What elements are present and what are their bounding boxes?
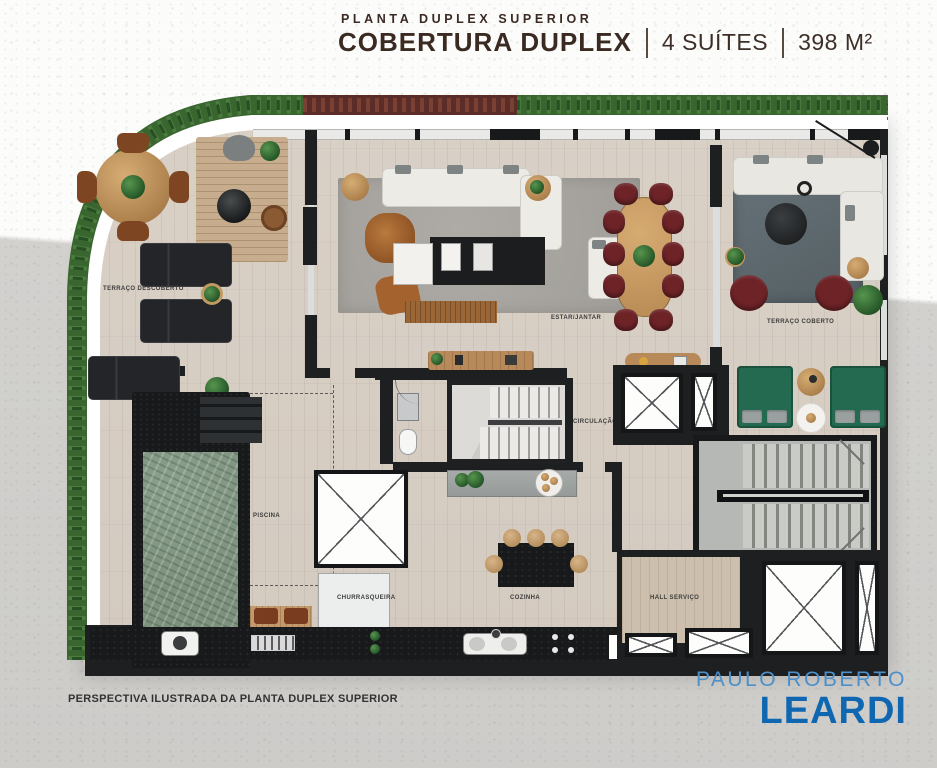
floor-plant <box>853 285 883 315</box>
window-post <box>625 129 630 140</box>
table-centerpiece <box>121 175 145 199</box>
daybed-table-item <box>809 375 817 383</box>
vent-grate <box>251 635 295 651</box>
potted-plant <box>727 248 744 265</box>
cooktop-burner <box>568 634 574 640</box>
window-post <box>345 129 350 140</box>
counter-herb <box>370 644 380 654</box>
kitchen-island <box>498 543 574 587</box>
window-frame <box>655 129 700 140</box>
window-post <box>810 129 815 140</box>
dining-chair <box>649 183 673 205</box>
sun-lounger <box>140 243 232 287</box>
brand-logo: PAULO ROBERTO LEARDI <box>696 669 907 730</box>
daybed-pillow <box>860 410 880 423</box>
service-elevator <box>762 561 846 655</box>
plan-subtitle: PLANTA DUPLEX SUPERIOR <box>341 12 904 26</box>
room-label-circulacao: CIRCULAÇÃO <box>573 419 617 425</box>
plate <box>541 473 549 481</box>
dining-chair <box>603 210 625 234</box>
deck-chair <box>223 135 255 161</box>
side-table-tray <box>847 257 869 279</box>
plate <box>550 477 558 485</box>
room-label-piscina: PISCINA <box>253 513 280 519</box>
sun-lounger <box>140 299 232 343</box>
sliding-door-right <box>713 207 720 347</box>
pendant-lamp-ring <box>797 181 812 196</box>
room-label-estar-jantar: ESTAR/JANTAR <box>551 315 601 321</box>
title-divider <box>782 28 784 58</box>
projection-dashed-corner <box>835 95 888 120</box>
stair-treads-upper <box>490 387 560 418</box>
sink-bowl <box>501 637 517 651</box>
sofa-pillow <box>753 155 769 164</box>
side-table-round <box>341 173 369 201</box>
title-row: COBERTURA DUPLEX 4 SUÍTES 398 M² <box>338 27 904 58</box>
dining-chair <box>649 309 673 331</box>
window-frame <box>490 129 540 140</box>
wall-mid <box>308 368 330 378</box>
suites-count: 4 SUÍTES <box>662 29 768 56</box>
main-staircase <box>447 380 565 464</box>
terrace-swivel-chair <box>815 275 853 311</box>
cooktop-burner <box>568 647 574 653</box>
console-bench <box>428 351 534 370</box>
daybed-pillow <box>835 410 855 423</box>
shaft-small <box>625 633 677 657</box>
side-table-white <box>393 243 433 285</box>
service-door-slit <box>609 635 617 659</box>
elevator-shaft-narrow <box>691 373 717 431</box>
daybed-pillow <box>767 410 787 423</box>
room-label-terraco-descoberto: TERRAÇO DESCOBERTO <box>103 286 184 292</box>
perspective-caption: PERSPECTIVA ILUSTRADA DA PLANTA DUPLEX S… <box>68 693 398 705</box>
window-post <box>573 129 578 140</box>
bench-cushion <box>254 608 278 624</box>
stair-treads-lower <box>480 427 560 459</box>
wall-hall <box>612 462 622 552</box>
logo-first-line: PAULO ROBERTO <box>696 669 907 690</box>
shaft-small <box>685 628 753 658</box>
dining-chair <box>662 210 684 234</box>
console-item <box>505 355 517 365</box>
island-stool <box>485 555 503 573</box>
deck-plant <box>260 141 280 161</box>
sofa-pillow <box>447 165 463 174</box>
console-item <box>455 355 463 365</box>
floor-plan: TERRAÇO DESCOBERTO PISCINA ESTAR/JANTAR <box>65 85 893 676</box>
side-table-plant <box>530 180 544 194</box>
toilet <box>399 429 417 455</box>
room-label-cozinha: COZINHA <box>510 595 540 601</box>
window-post <box>415 129 420 140</box>
bench-cushion <box>284 608 308 624</box>
bbq-grill-burner <box>173 636 187 650</box>
outdoor-chair <box>169 171 189 203</box>
title-block: PLANTA DUPLEX SUPERIOR COBERTURA DUPLEX … <box>338 12 904 58</box>
island-stool <box>527 529 545 547</box>
media-bench <box>405 301 497 323</box>
potted-plant <box>204 286 220 302</box>
projection-line <box>250 393 333 394</box>
kitchen-elevator <box>314 470 408 568</box>
wall-dining-right <box>710 145 722 207</box>
island-stool <box>570 555 588 573</box>
pool-water <box>143 452 238 643</box>
window-post <box>715 129 720 140</box>
outdoor-chair <box>117 221 149 241</box>
sink-bowl <box>469 637 485 651</box>
rail-highlight <box>723 494 863 497</box>
dining-chair <box>662 242 684 266</box>
console-plant <box>431 353 443 365</box>
dining-chair <box>603 242 625 266</box>
outdoor-chair <box>117 133 149 153</box>
wall-bath-left <box>380 378 393 464</box>
room-label-terraco-coberto: TERRAÇO COBERTO <box>767 319 834 325</box>
plan-title: COBERTURA DUPLEX <box>338 27 632 58</box>
sofa-pillow <box>503 165 519 174</box>
window-right <box>881 300 887 360</box>
fire-table <box>217 189 251 223</box>
hanging-chair <box>261 205 287 231</box>
dining-chair <box>603 274 625 298</box>
breakfast-table <box>535 469 563 497</box>
title-divider <box>646 28 648 58</box>
coffee-table-books <box>441 243 461 271</box>
coffee-table-books <box>473 243 493 271</box>
plan-area: 398 M² <box>798 29 873 56</box>
wall-living-left <box>305 130 317 205</box>
sofa-pillow <box>807 155 823 164</box>
logo-second-line: LEARDI <box>696 692 907 730</box>
counter-plant <box>467 471 484 488</box>
room-label-hall-servico: HALL SERVIÇO <box>650 595 699 601</box>
terrace-ottoman <box>765 203 807 245</box>
island-stool <box>551 529 569 547</box>
shaft-narrow <box>855 561 879 655</box>
terrace-swivel-chair <box>730 275 768 311</box>
outdoor-chair <box>77 171 97 203</box>
dining-chair <box>614 309 638 331</box>
sofa-pillow <box>845 205 855 221</box>
sink-faucet <box>491 629 501 639</box>
counter-herb <box>370 631 380 641</box>
dining-chair <box>614 183 638 205</box>
cooktop-burner <box>552 647 558 653</box>
tv-panel <box>303 207 317 265</box>
stair-rail <box>488 420 562 425</box>
island-stool <box>503 529 521 547</box>
elevator-shaft <box>621 373 683 433</box>
room-label-churrasqueira: CHURRASQUEIRA <box>337 595 396 601</box>
wall-circulation <box>565 378 573 464</box>
dining-chair <box>662 274 684 298</box>
pool-steps <box>200 397 262 443</box>
sofa-pillow <box>395 165 411 174</box>
daybed-pillow <box>742 410 762 423</box>
round-rug-center <box>806 413 816 423</box>
service-staircase <box>693 435 877 557</box>
window-wall-top <box>253 129 882 140</box>
dining-centerpiece <box>633 245 655 267</box>
plate <box>542 484 550 492</box>
cooktop-burner <box>552 634 558 640</box>
